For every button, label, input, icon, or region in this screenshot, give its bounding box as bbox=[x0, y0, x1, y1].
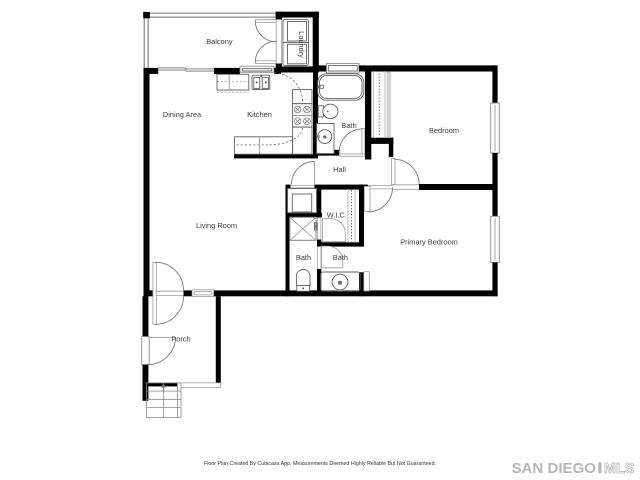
svg-text:Bath: Bath bbox=[341, 121, 356, 130]
svg-text:SAN DIEGO: SAN DIEGO bbox=[512, 461, 597, 477]
svg-text:Bath: Bath bbox=[296, 253, 311, 262]
svg-text:Kitchen: Kitchen bbox=[247, 110, 272, 119]
svg-text:Balcony: Balcony bbox=[206, 37, 233, 46]
svg-text:Floor Plan Created By Cubicasa: Floor Plan Created By Cubicasa App. Meas… bbox=[204, 461, 436, 467]
svg-text:Living Room: Living Room bbox=[196, 221, 237, 230]
svg-text:Porch: Porch bbox=[171, 335, 190, 344]
svg-text:Laundry: Laundry bbox=[297, 31, 306, 58]
svg-text:Dining Area: Dining Area bbox=[163, 110, 202, 119]
svg-text:MLS: MLS bbox=[604, 461, 635, 477]
svg-text:Hall: Hall bbox=[333, 165, 346, 174]
svg-text:Bath: Bath bbox=[333, 253, 348, 262]
svg-text:Primary Bedroom: Primary Bedroom bbox=[400, 238, 458, 247]
svg-text:Bedroom: Bedroom bbox=[429, 126, 459, 135]
svg-text:W.I.C.: W.I.C. bbox=[327, 211, 347, 220]
